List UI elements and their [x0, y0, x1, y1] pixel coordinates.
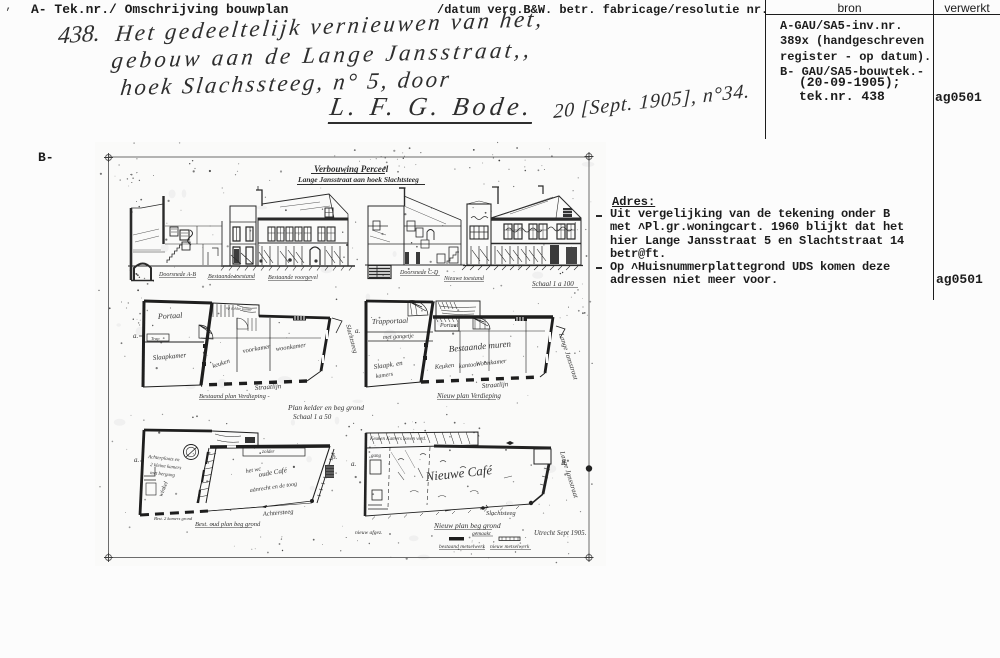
svg-text:gang: gang [371, 454, 382, 459]
svg-text:nieuw metselwerk: nieuw metselwerk [490, 544, 530, 550]
svg-text:Verbouwing Perceel: Verbouwing Perceel [314, 164, 389, 174]
svg-text:Best. 2 kamers grond: Best. 2 kamers grond [154, 516, 193, 521]
svg-text:Doorsnede C-D: Doorsnede C-D [399, 270, 439, 276]
svg-text:Trapportaal: Trapportaal [372, 316, 409, 326]
svg-text:Schaal 1 a 50: Schaal 1 a 50 [293, 413, 332, 421]
svg-text:Portaal: Portaal [439, 323, 459, 329]
svg-text:Utrecht Sept 1905.: Utrecht Sept 1905. [534, 529, 587, 537]
svg-text:Schaal 1 a 100: Schaal 1 a 100 [532, 280, 574, 288]
svg-text:Slachtsteeg: Slachtsteeg [486, 510, 516, 517]
svg-text:Bestaande voorgevel: Bestaande voorgevel [268, 275, 318, 281]
svg-text:Lange Jansstraat aan hoek Slac: Lange Jansstraat aan hoek Slachtsteeg [297, 175, 419, 184]
svg-text:a.: a. [133, 332, 139, 340]
svg-text:Nieuw plan Verdieping: Nieuw plan Verdieping [436, 392, 501, 400]
svg-text:Keuken Kamers boven verd.: Keuken Kamers boven verd. [369, 437, 426, 442]
svg-text:Portaal: Portaal [157, 311, 184, 321]
svg-text:b.: b. [332, 453, 338, 461]
svg-text:Doorsnede A-B: Doorsnede A-B [158, 272, 196, 278]
svg-text:Bestaand plan Verdieping -: Bestaand plan Verdieping - [199, 393, 270, 400]
svg-text:a.: a. [351, 460, 357, 468]
svg-text:Best. oud plan beg grond: Best. oud plan beg grond [195, 521, 261, 528]
svg-text:nieuw afgez.: nieuw afgez. [355, 529, 383, 536]
svg-text:Trap: Trap [151, 336, 160, 341]
svg-text:Nieuw plan beg grond: Nieuw plan beg grond [433, 521, 501, 530]
svg-text:bestaand metselwerk: bestaand metselwerk [439, 544, 486, 550]
svg-text:a.: a. [355, 327, 361, 335]
svg-text:Nieuwe toestand: Nieuwe toestand [443, 276, 485, 282]
svg-text:Bestaande toestand: Bestaande toestand [208, 274, 256, 280]
svg-text:a.: a. [134, 456, 140, 464]
svg-text:Plan kelder en beg grond: Plan kelder en beg grond [287, 403, 364, 412]
svg-text:zolder: zolder [261, 450, 275, 455]
